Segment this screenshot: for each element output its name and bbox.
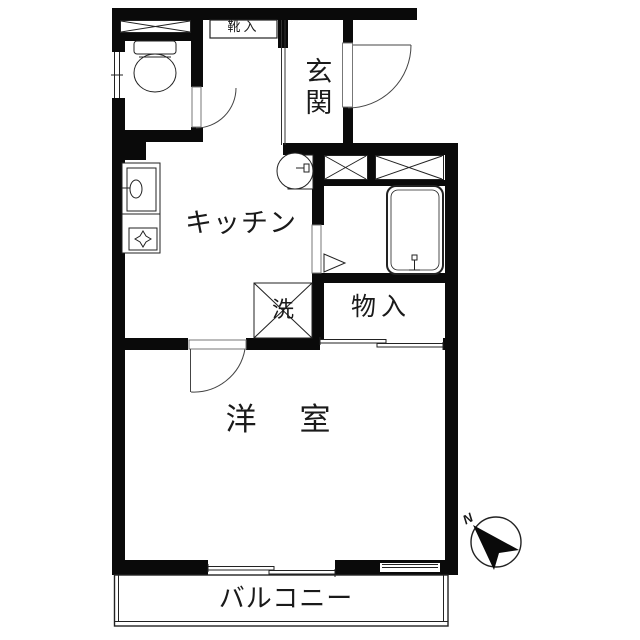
wall-entrance-west-stub [278, 20, 288, 48]
kitchen-label: キッチン [171, 209, 311, 237]
toilet-icon [134, 41, 176, 92]
wall-entrance-east-upper [343, 8, 353, 44]
toilet-door [192, 87, 236, 128]
entrance-door [343, 43, 412, 108]
wall-room-north-2 [246, 338, 320, 350]
entrance-door-arc [348, 45, 411, 108]
shoe-cabinet-label: 靴入 [210, 20, 277, 34]
wall-right [445, 143, 458, 575]
wall-room-north-1 [112, 338, 188, 350]
western-room-door-leaf [189, 340, 246, 349]
bathroom-door-swing-icon [324, 254, 345, 272]
western-room-label: 洋 室 [181, 404, 381, 437]
wall-closet-divider [367, 155, 375, 180]
entrance-door-leaf [343, 43, 353, 107]
faucet-icon [130, 180, 142, 198]
bathroom-door-leaf [312, 225, 321, 273]
wall-room-north-3 [443, 338, 458, 350]
wall-laundry-east [312, 283, 324, 340]
wash-basin-icon [277, 153, 313, 189]
wall-toilet-shelf [120, 33, 203, 41]
wall-corner-block [112, 142, 146, 160]
wall-top [112, 8, 417, 20]
laundry-label: 洗 [260, 298, 306, 321]
compass [471, 517, 521, 570]
western-room-door [189, 340, 246, 392]
wall-bottom-1 [112, 560, 208, 575]
bathroom [312, 186, 443, 274]
western-room-door-arc [191, 349, 245, 392]
entrance-label: 玄関 [302, 53, 330, 123]
storage-sliding-door [320, 337, 443, 350]
wall-toilet-south [112, 130, 203, 142]
wall-bath-block-north [283, 143, 458, 155]
wall-bath-west-upper [312, 155, 324, 225]
bath-closets [325, 156, 444, 180]
kitchen-counter-icon [122, 163, 160, 253]
balcony-label: バルコニー [196, 585, 376, 612]
wall-toilet-east-upper [191, 20, 203, 87]
toilet-window [110, 52, 126, 98]
floor-plan: 靴入 玄関 キッチン 洗 物入 洋 室 バルコニー N [0, 0, 640, 640]
small-window [380, 563, 440, 572]
storage-label: 物入 [334, 294, 428, 320]
